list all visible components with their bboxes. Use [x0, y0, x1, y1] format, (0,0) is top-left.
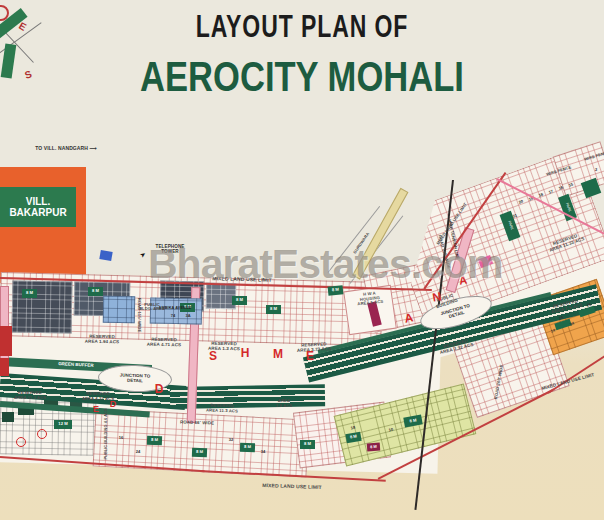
to-village-label: TO VILL. NANDGARH ⟶: [24, 144, 108, 154]
road-marker-8m: 8 M: [88, 287, 103, 296]
road-letter: A: [401, 311, 417, 327]
road-letter: D: [152, 383, 166, 397]
road-marker-8m: 8 M: [300, 440, 315, 449]
layout-plan-canvas: LAYOUT PLAN OF AEROCITY MOHALI BharatEst…: [0, 0, 604, 520]
public-building-label: PUBLIC BUILDING 4.6 ACS: [102, 404, 110, 464]
reserved-area-label: RESERVED AREA 4.71 ACS: [138, 336, 190, 349]
road-letter: D: [107, 399, 119, 411]
reserved-area-label: RESERVED AREA 11.3 ACS: [6, 390, 54, 402]
road-letter: E: [90, 404, 102, 416]
plot-block-dark: [12, 280, 73, 333]
road-letter: H: [238, 347, 252, 361]
village-label: VILL. BAKARPUR: [0, 187, 76, 227]
plan-area: ESVILL. BAKARPURTO VILL. NANDGARH ⟶TELEP…: [0, 0, 604, 520]
village-road-yellow: [352, 188, 408, 280]
road-marker-8m: 8 M: [147, 436, 162, 446]
road-marker-12m: 12 M: [54, 420, 72, 429]
plot-block-blue: [103, 296, 135, 324]
compass-letter-s: S: [20, 66, 35, 81]
road-letter: E: [303, 350, 317, 364]
plot-number: 24: [133, 449, 143, 455]
road-marker-8m-magenta: 8 M: [367, 443, 381, 452]
road-marker-8m: 8 M: [240, 443, 255, 453]
plot-number: 16: [116, 435, 126, 441]
road-width-label: ROAD 115' WIDE: [135, 292, 143, 338]
telephone-tower-label: TELEPHONE TOWER: [148, 243, 192, 255]
red-block: [0, 326, 12, 356]
road-letter: S: [206, 350, 220, 364]
red-circle-marker: [37, 429, 47, 439]
road-marker-8m: 8 M: [192, 448, 207, 458]
red-block: [0, 358, 9, 376]
plot-number: 34: [258, 449, 268, 455]
mixed-land-use-label: MIXED LAND USE LIMIT: [232, 481, 352, 493]
reserved-area-label: RESERVED AREA 11.3 ACS: [198, 402, 246, 416]
plot-number: 2: [591, 167, 601, 173]
village-dot-icon: [99, 250, 112, 261]
road-letter: N: [429, 290, 445, 306]
road-marker-8m: 8 M: [22, 289, 37, 298]
road-letter: A: [455, 272, 471, 288]
plot-number: 3A: [183, 313, 193, 319]
plot-block-green: [2, 412, 14, 422]
plot-number: 32: [226, 437, 236, 443]
road-marker-8m: 8 M: [328, 285, 344, 296]
red-circle-marker: [16, 437, 26, 447]
road-marker-8m: 8 M: [266, 305, 281, 314]
reserved-area-label: RESERVED AREA 1.94 ACS: [76, 333, 128, 346]
reserved-area-label: AREA 1.8 ACS: [266, 399, 302, 409]
road-letter: M: [271, 348, 285, 362]
road-marker-8m: 8 M: [232, 296, 247, 305]
